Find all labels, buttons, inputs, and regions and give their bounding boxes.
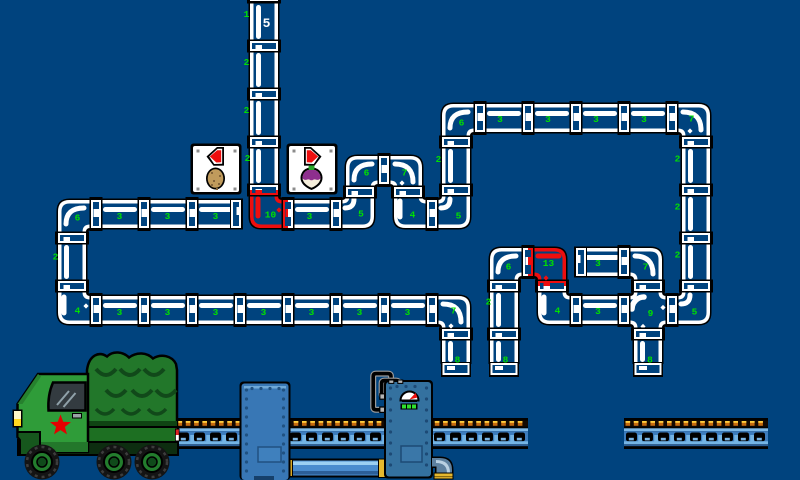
svg-text:7: 7 (451, 306, 457, 317)
svg-text:6: 6 (459, 118, 465, 129)
svg-text:6: 6 (75, 213, 81, 224)
svg-text:1: 1 (244, 9, 250, 20)
svg-text:5: 5 (263, 16, 271, 31)
svg-text:6: 6 (364, 168, 370, 179)
svg-text:2: 2 (245, 153, 251, 164)
svg-text:5: 5 (358, 209, 364, 220)
svg-text:2: 2 (436, 154, 442, 165)
svg-text:2: 2 (244, 105, 250, 116)
svg-text:3: 3 (357, 307, 363, 318)
svg-text:2: 2 (486, 297, 492, 308)
svg-text:3: 3 (165, 211, 171, 222)
svg-text:3: 3 (307, 211, 313, 222)
svg-text:3: 3 (117, 211, 123, 222)
svg-text:7: 7 (402, 168, 408, 179)
svg-text:3: 3 (593, 114, 599, 125)
svg-text:5: 5 (456, 211, 462, 222)
svg-text:3: 3 (117, 307, 123, 318)
svg-text:8: 8 (647, 355, 653, 366)
svg-text:2: 2 (675, 250, 681, 261)
svg-text:3: 3 (309, 307, 315, 318)
svg-text:2: 2 (675, 202, 681, 213)
svg-text:3: 3 (213, 307, 219, 318)
svg-text:6: 6 (506, 262, 512, 273)
svg-text:10: 10 (265, 210, 277, 221)
svg-text:3: 3 (261, 307, 267, 318)
svg-text:4: 4 (75, 306, 81, 317)
svg-text:3: 3 (405, 307, 411, 318)
svg-text:4: 4 (410, 210, 416, 221)
svg-text:2: 2 (244, 57, 250, 68)
svg-text:9: 9 (648, 308, 654, 319)
svg-text:8: 8 (503, 355, 509, 366)
svg-text:2: 2 (675, 154, 681, 165)
svg-text:3: 3 (641, 114, 647, 125)
svg-text:3: 3 (595, 306, 601, 317)
svg-text:3: 3 (165, 307, 171, 318)
svg-text:3: 3 (213, 211, 219, 222)
svg-text:3: 3 (595, 258, 601, 269)
svg-text:13: 13 (543, 258, 555, 269)
svg-text:2: 2 (53, 252, 59, 263)
svg-text:7: 7 (689, 114, 695, 125)
svg-text:8: 8 (455, 355, 461, 366)
svg-text:5: 5 (692, 307, 698, 318)
svg-text:4: 4 (555, 306, 561, 317)
svg-text:7: 7 (643, 262, 649, 273)
svg-text:3: 3 (497, 114, 503, 125)
svg-text:3: 3 (545, 114, 551, 125)
